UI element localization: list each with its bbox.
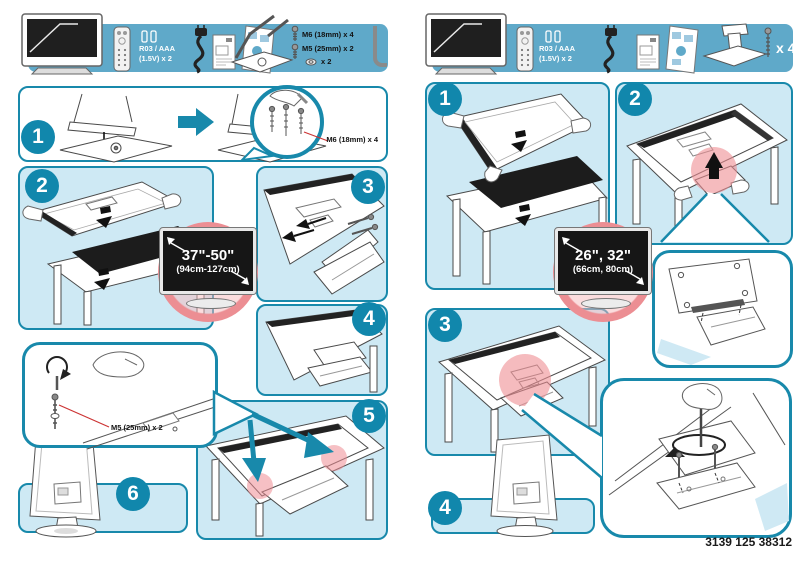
size-tv-base [186, 298, 236, 309]
step-badge-2: 2 [618, 82, 652, 116]
battery-label: R03 / AAA (1.5V) x 2 [539, 44, 575, 64]
battery-icon [545, 30, 563, 43]
step-badge-3: 3 [428, 308, 462, 342]
panel-accent [657, 339, 711, 365]
hand-icon [23, 206, 43, 221]
screw-icon [51, 394, 59, 429]
tv-back-finished-illustration [487, 432, 571, 536]
battery-label-line1: R03 / AAA [139, 44, 175, 54]
bracket-detail-illustration [655, 253, 790, 365]
right-size-badge: 26", 32" (66cm, 80cm) [553, 218, 657, 330]
allen-key-icon [47, 357, 71, 390]
next-arrow-icon [178, 108, 214, 136]
left-step1-panel: M6 (18mm) x 4 1 [18, 86, 388, 162]
size-tv-screen: 37"-50" (94cm-127cm) [160, 228, 256, 294]
stand-bracket [697, 307, 765, 345]
hand-icon [682, 384, 722, 410]
left-step3-panel: 3 [256, 166, 388, 302]
left-size-badge: 37"-50" (94cm-127cm) [158, 218, 262, 330]
battery-label-line1: R03 / AAA [539, 44, 575, 54]
stand-neck-icon [228, 14, 294, 74]
battery-label: R03 / AAA (1.5V) x 2 [139, 44, 175, 64]
remote-icon [516, 26, 536, 72]
step-badge-5: 5 [352, 399, 386, 433]
leader-line [59, 405, 109, 427]
screw-point-highlight [321, 445, 347, 471]
size-tv-base [581, 298, 631, 309]
screw-point-highlight [247, 473, 273, 499]
tv-icon [424, 12, 512, 78]
step-badge-4: 4 [428, 491, 462, 525]
power-cable-icon [186, 24, 214, 72]
step-badge-1: 1 [428, 82, 462, 116]
hand-icon [571, 118, 591, 133]
power-cable-icon [596, 24, 624, 72]
m6-screw-label: M6 (18mm) x 4 [302, 30, 354, 39]
screw-icon [763, 28, 773, 58]
m5-screw-label: M5 (25mm) x 2 [302, 44, 354, 53]
battery-label-line2: (1.5V) x 2 [539, 54, 575, 64]
step-badge-2: 2 [25, 169, 59, 203]
left-step5-panel: 5 [196, 400, 388, 540]
screw-icon [290, 44, 300, 60]
hand-icon [731, 180, 749, 194]
screw-icon [290, 26, 300, 42]
size-tv-screen: 26", 32" (66cm, 80cm) [555, 228, 651, 294]
allen-key-icon [370, 24, 388, 70]
screw-qty-label: x 4 [776, 40, 795, 56]
stand-base-icon [704, 20, 766, 70]
diagonal-arrow-icon [163, 231, 253, 291]
right-screwdriver-callout-balloon [600, 378, 792, 538]
diagonal-arrow-icon [558, 231, 648, 291]
remote-icon [113, 26, 133, 72]
setup-poster-icon [666, 26, 700, 74]
washer-icon [305, 58, 317, 66]
right-bracket-callout-balloon [652, 250, 793, 368]
instruction-sheet: R03 / AAA (1.5V) x 2 M6 (18mm) x 4 M5 (2… [0, 0, 802, 568]
step-badge-3: 3 [351, 170, 385, 204]
part-number: 3139 125 38312 [600, 535, 792, 549]
stand-neck-part [60, 94, 172, 162]
battery-label-line2: (1.5V) x 2 [139, 54, 175, 64]
left-step4-panel: 4 [256, 304, 388, 396]
step-badge-4: 4 [352, 302, 386, 336]
panel-accent [755, 483, 789, 531]
lock-point-highlight [499, 354, 551, 406]
tv-icon [20, 12, 108, 78]
left-screw-callout-balloon: M5 (25mm) x 2 [22, 342, 218, 448]
step1-assembly-illustration [20, 88, 386, 160]
washer-qty-label: x 2 [321, 57, 331, 66]
manual-icon [636, 34, 660, 70]
balloon-screw-label: M5 (25mm) x 2 [111, 423, 163, 432]
step-badge-6: 6 [116, 477, 150, 511]
step-badge-1: 1 [21, 120, 55, 154]
table-leg [370, 346, 377, 392]
battery-icon [141, 30, 159, 43]
screwdriver-detail-illustration [603, 381, 789, 535]
step1-screw-label: M6 (18mm) x 4 [326, 135, 378, 144]
